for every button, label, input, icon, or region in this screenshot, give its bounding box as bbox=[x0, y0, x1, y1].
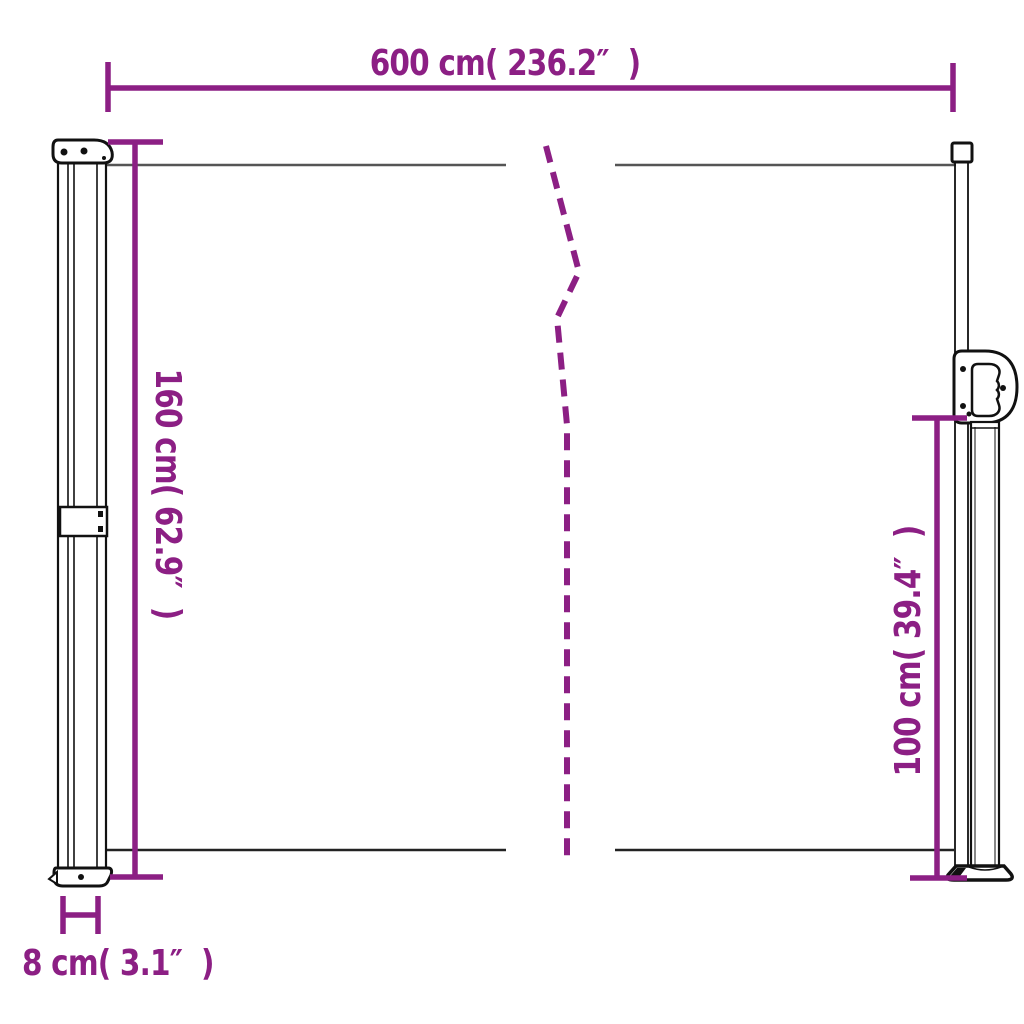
height-left-dimension-label: 160 cm( 62.9″ ) bbox=[147, 330, 187, 658]
screw-icon bbox=[61, 149, 68, 156]
break-line bbox=[546, 146, 579, 861]
depth-dimension-label: 8 cm( 3.1″ ) bbox=[22, 944, 366, 984]
awning-fabric bbox=[107, 165, 956, 850]
screw-icon bbox=[81, 148, 88, 155]
screw-icon bbox=[960, 403, 966, 409]
support-pole bbox=[947, 143, 1017, 880]
screw-icon bbox=[102, 156, 106, 160]
screw-icon bbox=[78, 874, 84, 880]
screw-icon bbox=[98, 511, 103, 517]
dimension-depth bbox=[63, 896, 98, 934]
dimension-diagram: 600 cm( 236.2″ ) 160 cm( 62.9″ ) 100 cm(… bbox=[0, 0, 1024, 1024]
screw-icon bbox=[98, 526, 103, 532]
handle-grip-cutout bbox=[972, 364, 1000, 416]
height-right-dimension-label: 100 cm( 39.4″ ) bbox=[889, 487, 929, 815]
screw-icon bbox=[967, 412, 972, 417]
screw-icon bbox=[960, 366, 966, 372]
width-dimension-label: 600 cm( 236.2″ ) bbox=[161, 44, 850, 84]
pole-top-cap bbox=[952, 143, 972, 162]
cassette-housing bbox=[49, 140, 112, 886]
screw-icon bbox=[1000, 385, 1006, 391]
